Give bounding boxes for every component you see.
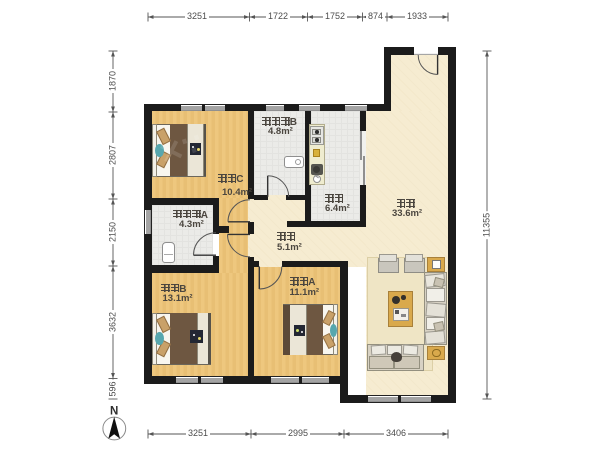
svg-text:N: N [110, 406, 118, 418]
